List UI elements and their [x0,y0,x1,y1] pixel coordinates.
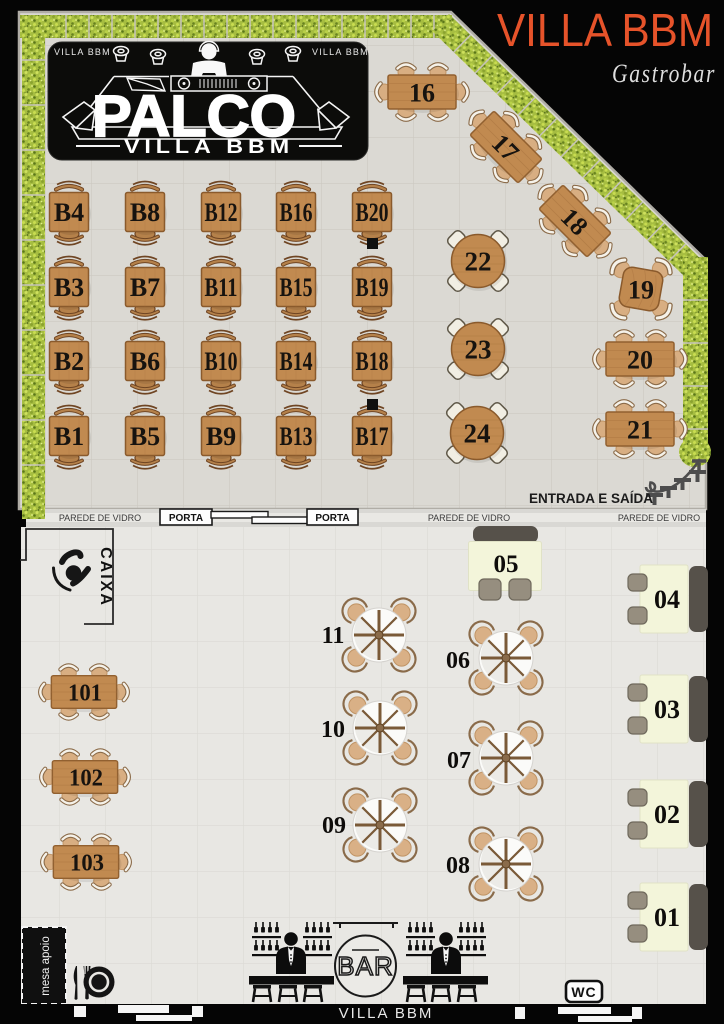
svg-text:PORTA: PORTA [169,513,203,524]
svg-text:07: 07 [447,748,471,774]
svg-text:ENTRADA E SAÍDA: ENTRADA E SAÍDA [529,491,653,506]
svg-text:B8: B8 [130,198,160,227]
svg-text:WC: WC [571,984,596,1000]
svg-text:24: 24 [464,419,491,449]
svg-text:B14: B14 [280,347,313,376]
svg-text:PAREDE DE VIDRO: PAREDE DE VIDRO [618,513,700,523]
svg-text:VILLA BBM: VILLA BBM [312,47,369,57]
svg-text:VILLA BBM: VILLA BBM [124,137,294,158]
svg-text:BAR: BAR [337,951,393,981]
svg-text:B3: B3 [54,273,84,302]
svg-text:06: 06 [446,648,470,674]
svg-text:B12: B12 [205,198,238,227]
svg-text:B1: B1 [54,422,84,451]
svg-text:PAREDE DE VIDRO: PAREDE DE VIDRO [428,513,510,523]
svg-text:01: 01 [654,903,680,932]
svg-text:22: 22 [465,247,492,277]
svg-text:PORTA: PORTA [315,513,349,524]
svg-text:20: 20 [627,346,653,375]
svg-text:102: 102 [69,766,103,792]
svg-text:CAIXA: CAIXA [97,547,114,607]
svg-text:B2: B2 [54,347,84,376]
svg-text:B5: B5 [130,422,160,451]
svg-text:B15: B15 [280,273,313,302]
svg-text:09: 09 [322,813,346,839]
svg-text:03: 03 [654,695,680,724]
svg-text:B13: B13 [280,422,313,451]
svg-text:23: 23 [465,335,492,365]
svg-text:B7: B7 [130,273,160,302]
svg-text:103: 103 [70,851,104,877]
svg-text:VILLA BBM: VILLA BBM [497,4,713,56]
svg-text:08: 08 [446,853,470,879]
svg-text:19: 19 [628,276,654,305]
svg-text:16: 16 [409,79,435,108]
svg-text:B6: B6 [130,347,160,376]
svg-text:B20: B20 [356,198,389,227]
svg-text:B19: B19 [356,273,389,302]
svg-text:B18: B18 [356,347,389,376]
svg-text:10: 10 [321,717,345,743]
svg-text:B10: B10 [205,347,238,376]
svg-text:101: 101 [68,681,102,707]
svg-text:B9: B9 [206,422,236,451]
svg-text:B4: B4 [54,198,84,227]
svg-text:VILLA BBM: VILLA BBM [54,47,111,57]
svg-text:05: 05 [494,551,519,578]
svg-text:B16: B16 [280,198,313,227]
svg-text:Gastrobar: Gastrobar [612,59,716,88]
svg-text:04: 04 [654,585,680,614]
svg-text:mesa apoio: mesa apoio [40,936,52,995]
svg-text:B11: B11 [205,273,238,302]
svg-text:B17: B17 [356,422,389,451]
svg-text:21: 21 [627,416,653,445]
svg-text:11: 11 [322,623,345,649]
svg-text:PAREDE DE VIDRO: PAREDE DE VIDRO [59,513,141,523]
svg-text:VILLA BBM: VILLA BBM [339,1005,434,1022]
svg-text:02: 02 [654,800,680,829]
